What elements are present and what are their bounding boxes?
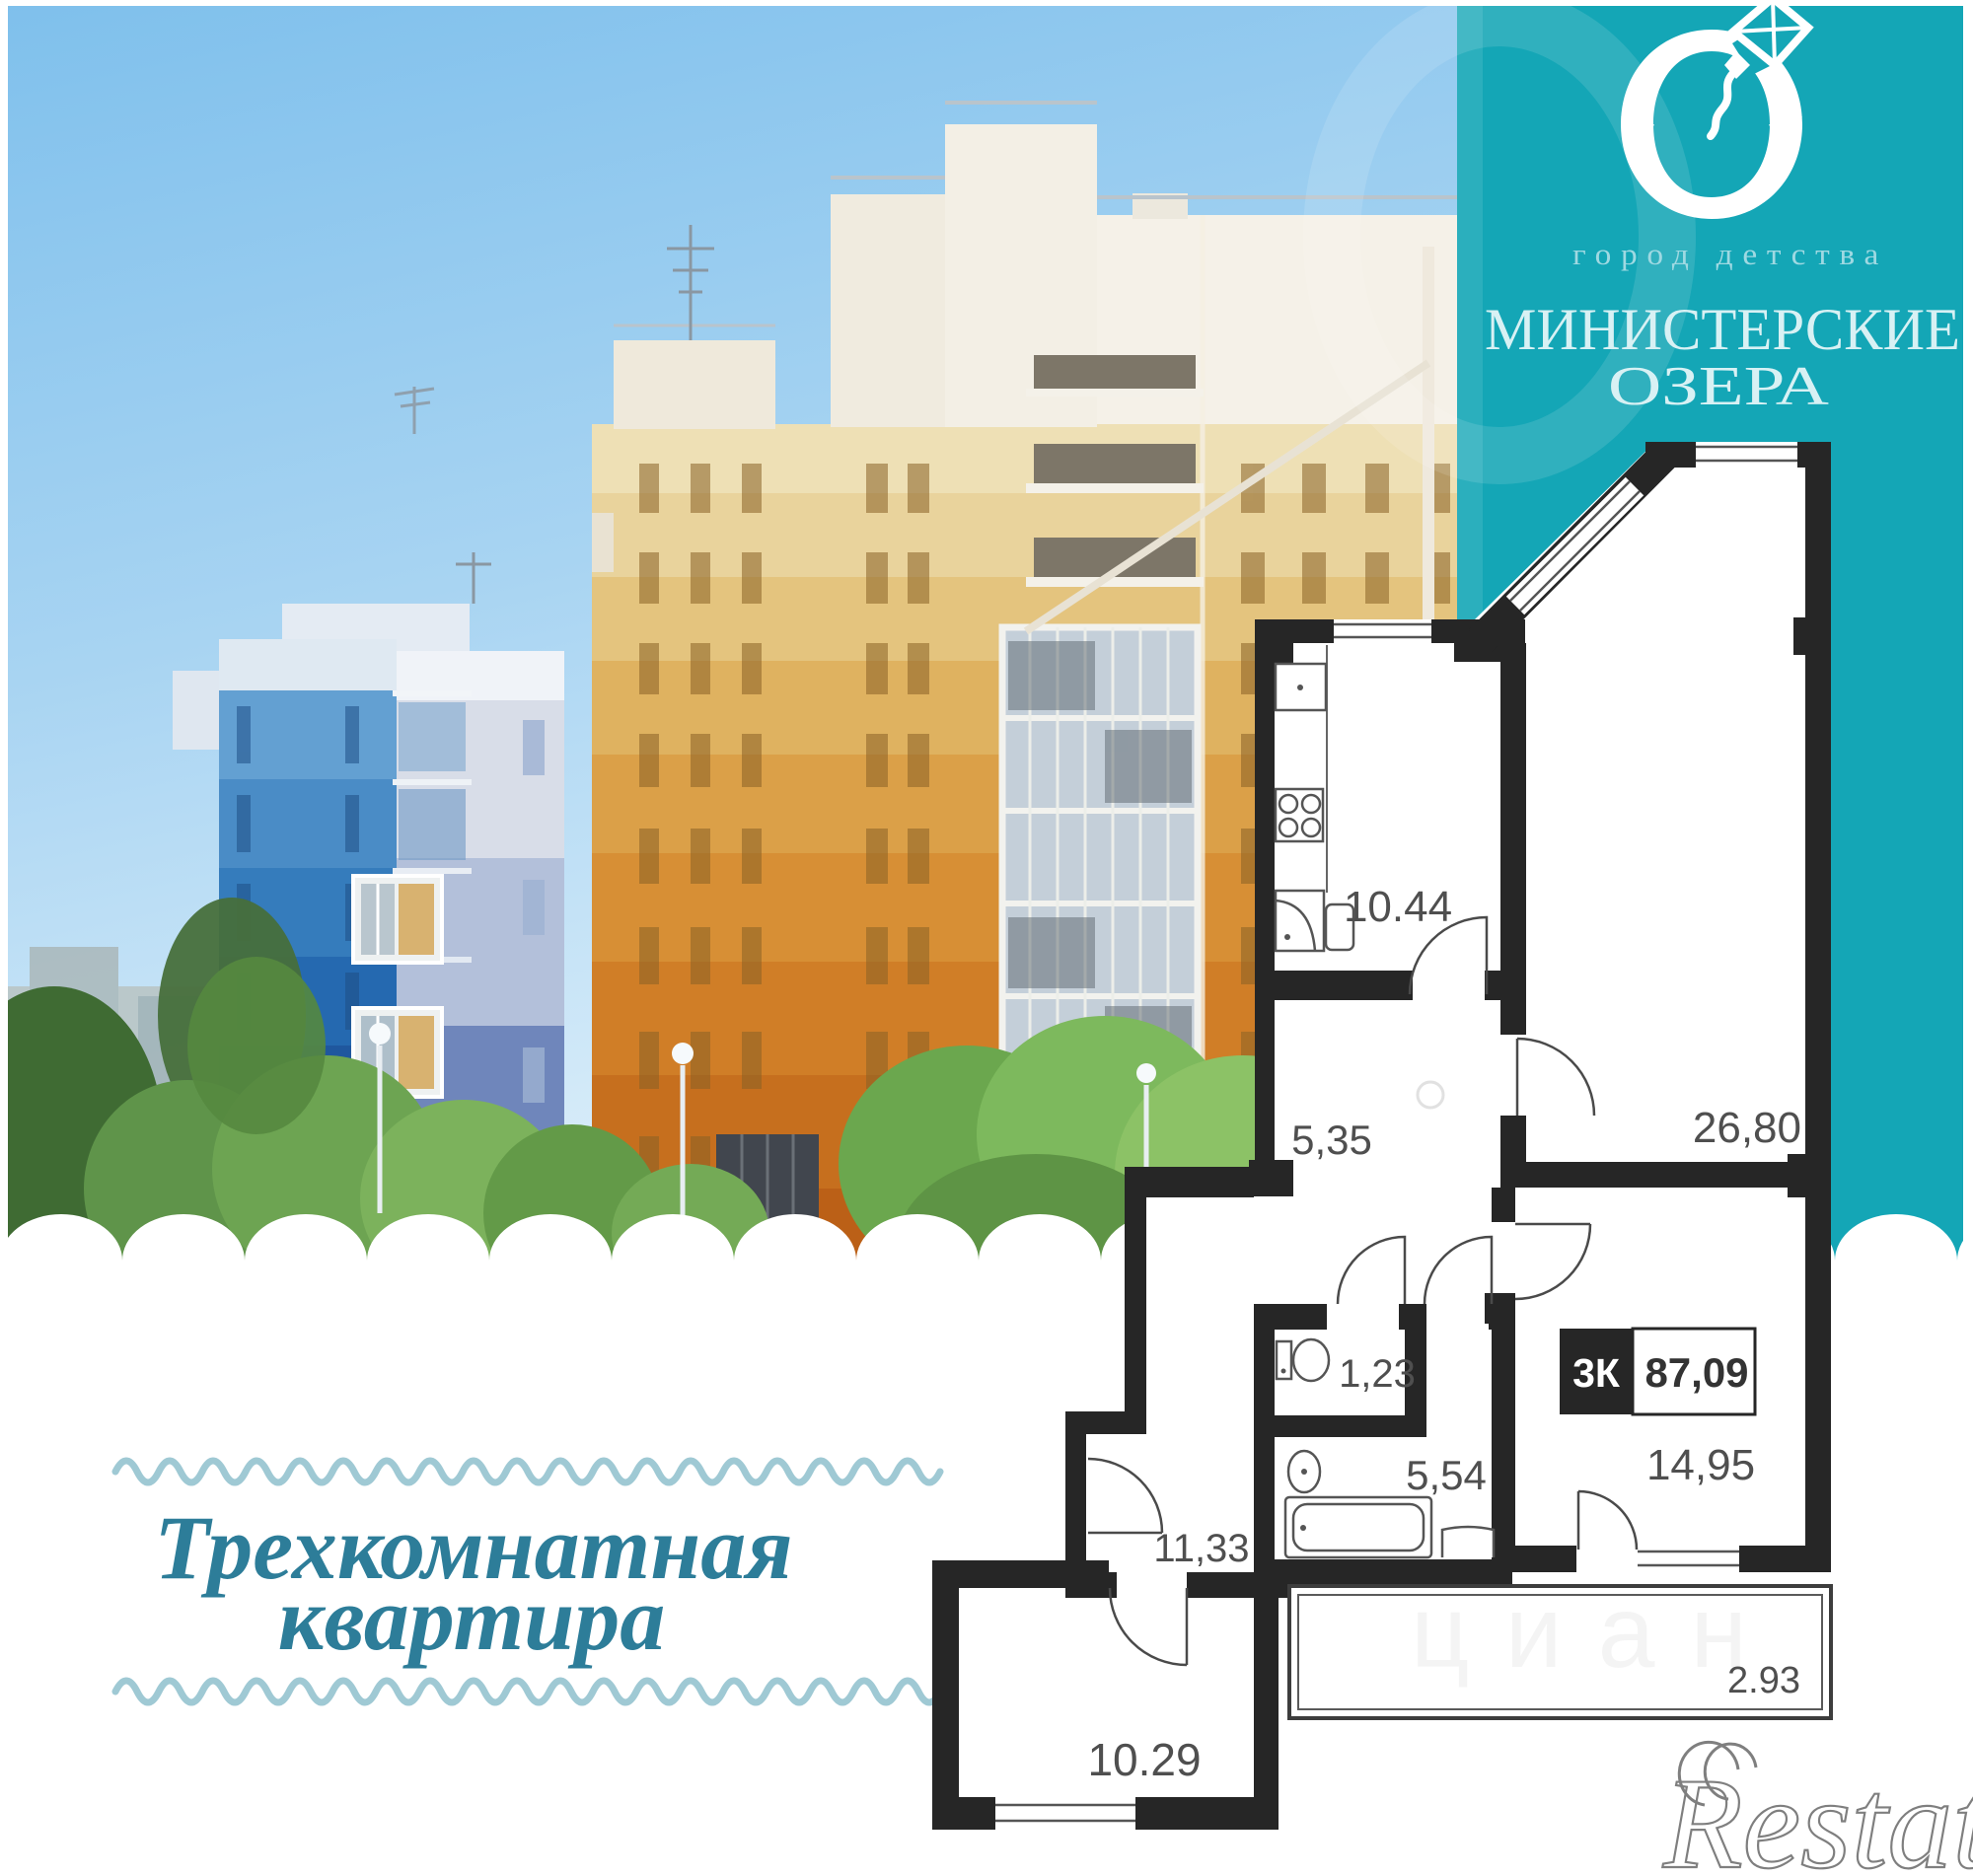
svg-text:10.29: 10.29 bbox=[1087, 1734, 1201, 1785]
svg-text:МИНИСТЕРСКИЕ: МИНИСТЕРСКИЕ bbox=[1485, 297, 1960, 362]
svg-text:5,54: 5,54 bbox=[1406, 1452, 1487, 1498]
svg-text:10.44: 10.44 bbox=[1344, 883, 1452, 931]
svg-text:Restate: Restate bbox=[1662, 1751, 1973, 1876]
svg-text:циан: циан bbox=[1411, 1575, 1783, 1690]
svg-text:87,09: 87,09 bbox=[1644, 1349, 1748, 1396]
svg-text:город детства: город детства bbox=[1572, 237, 1888, 271]
svg-text:5,35: 5,35 bbox=[1291, 1117, 1372, 1163]
svg-text:1,23: 1,23 bbox=[1339, 1352, 1416, 1396]
svg-text:квартира: квартира bbox=[278, 1568, 666, 1669]
svg-text:11,33: 11,33 bbox=[1153, 1527, 1249, 1570]
svg-text:ОЗЕРА: ОЗЕРА bbox=[1608, 356, 1830, 417]
svg-text:26,80: 26,80 bbox=[1693, 1104, 1801, 1152]
svg-text:14,95: 14,95 bbox=[1646, 1441, 1755, 1489]
svg-text:3К: 3К bbox=[1572, 1350, 1621, 1396]
